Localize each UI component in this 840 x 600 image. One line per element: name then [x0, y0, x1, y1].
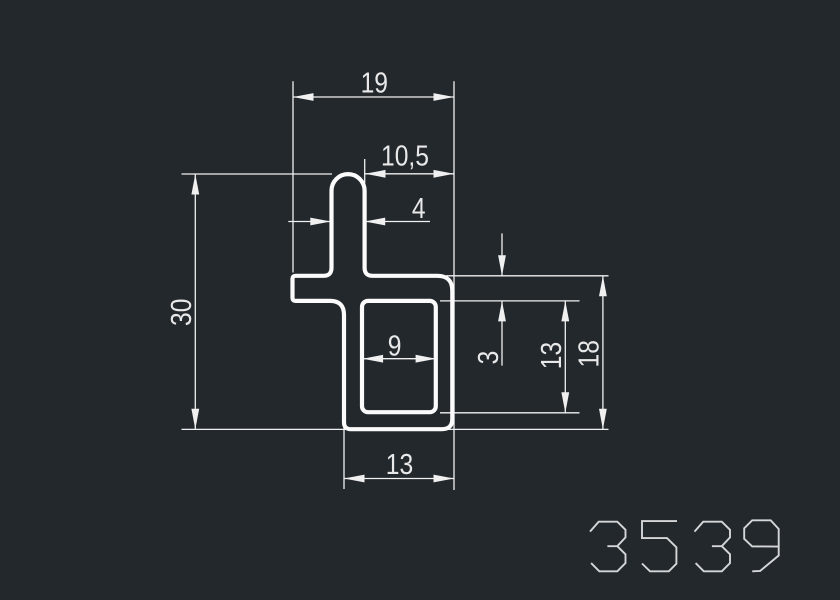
svg-text:18: 18: [573, 340, 605, 367]
svg-text:13: 13: [386, 448, 413, 480]
svg-text:13: 13: [535, 342, 567, 369]
svg-text:3: 3: [472, 351, 504, 365]
svg-text:19: 19: [361, 67, 388, 99]
svg-text:30: 30: [165, 299, 197, 326]
svg-text:9: 9: [388, 330, 402, 362]
svg-text:4: 4: [412, 192, 426, 224]
svg-text:10,5: 10,5: [381, 140, 429, 172]
